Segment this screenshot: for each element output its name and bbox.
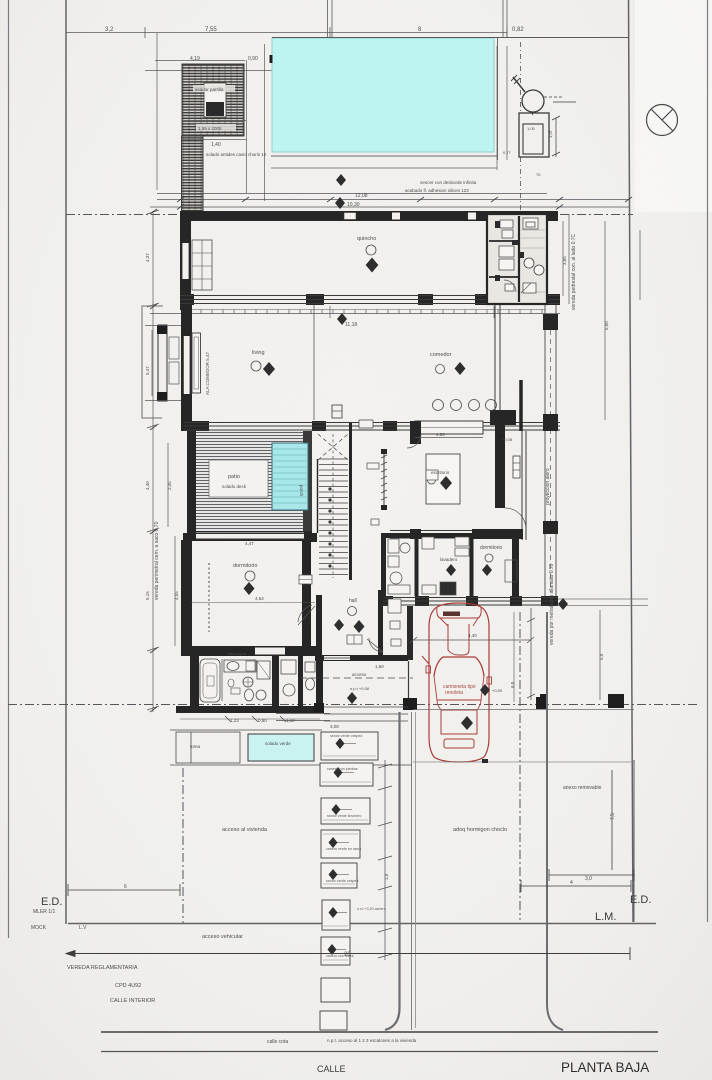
svg-text:E.D.: E.D. <box>41 896 62 908</box>
svg-text:acceso: acceso <box>352 672 367 677</box>
svg-text:+0,05: +0,05 <box>492 688 503 693</box>
svg-text:L.V: L.V <box>79 925 87 931</box>
svg-text:12,08: 12,08 <box>355 193 368 199</box>
svg-text:sector verde limonero: sector verde limonero <box>327 814 362 818</box>
svg-text:proyeccion alero: proyeccion alero <box>545 468 551 505</box>
svg-text:3,0: 3,0 <box>585 876 592 882</box>
svg-text:escritorio: escritorio <box>431 470 450 475</box>
svg-text:CPD 4U92: CPD 4U92 <box>115 983 141 989</box>
svg-text:6: 6 <box>124 884 127 890</box>
svg-text:3,85: 3,85 <box>562 256 567 265</box>
svg-text:canero verde en rama: canero verde en rama <box>326 847 361 851</box>
svg-text:1,07: 1,07 <box>548 129 553 138</box>
svg-text:canero con piedras: canero con piedras <box>327 767 358 771</box>
svg-text:comedor: comedor <box>430 352 452 358</box>
svg-text:anexo removable: anexo removable <box>563 785 602 791</box>
svg-text:toma: toma <box>190 744 201 749</box>
svg-text:75: 75 <box>536 172 541 177</box>
svg-text:CALLE: CALLE <box>317 1064 346 1074</box>
svg-text:n.p.t. acceso al 1 2 3 escalon: n.p.t. acceso al 1 2 3 escalones a la vi… <box>327 1038 417 1043</box>
svg-text:E.D.: E.D. <box>630 894 651 906</box>
svg-text:7,55: 7,55 <box>205 27 217 33</box>
svg-text:5,00: 5,00 <box>604 321 609 330</box>
svg-text:vereda por metral cem allanado: vereda por metral cem allanado 0.70 <box>549 563 555 645</box>
svg-text:ALA COMEDOR 5,47: ALA COMEDOR 5,47 <box>205 351 210 395</box>
svg-text:0,80: 0,80 <box>258 718 267 723</box>
svg-text:1,0: 1,0 <box>384 873 389 880</box>
svg-text:2,45: 2,45 <box>167 481 172 490</box>
svg-text:5,0: 5,0 <box>599 653 604 660</box>
svg-text:bano ppal: bano ppal <box>228 651 246 656</box>
svg-text:living: living <box>252 350 265 356</box>
svg-text:MOCK: MOCK <box>31 925 47 931</box>
svg-text:+0,08: +0,08 <box>502 437 513 442</box>
svg-text:4,60: 4,60 <box>436 432 445 437</box>
svg-text:4,37: 4,37 <box>145 253 150 262</box>
svg-text:0,77: 0,77 <box>503 150 512 155</box>
svg-text:patio: patio <box>228 474 240 480</box>
svg-text:n.v.t +0,20 canero: n.v.t +0,20 canero <box>357 907 386 911</box>
svg-text:lavadero: lavadero <box>440 557 458 562</box>
svg-text:11,18: 11,18 <box>345 322 357 328</box>
svg-text:1,10: 1,10 <box>286 718 295 723</box>
svg-text:3,08: 3,08 <box>330 724 339 729</box>
svg-text:CALLE INTERIOR: CALLE INTERIOR <box>110 998 155 1004</box>
svg-text:1,55 x 2005: 1,55 x 2005 <box>198 126 222 131</box>
svg-text:solado deck: solado deck <box>222 484 247 489</box>
svg-text:L.M.: L.M. <box>595 911 616 923</box>
svg-text:acceso al vivienda: acceso al vivienda <box>222 827 268 833</box>
svg-text:3,2: 3,2 <box>105 27 114 33</box>
svg-text:acceso vehicular: acceso vehicular <box>202 934 243 940</box>
svg-text:10,30: 10,30 <box>347 202 360 208</box>
svg-text:vereda pedrestal con. al lado: vereda pedrestal con. al lado 0.7C <box>571 233 577 310</box>
svg-text:acabado fl. adhesion silices 1: acabado fl. adhesion silices 123 <box>405 188 469 193</box>
svg-text:4,47: 4,47 <box>245 541 254 546</box>
svg-text:1,50: 1,50 <box>375 664 384 669</box>
svg-text:5,15: 5,15 <box>145 591 150 600</box>
svg-text:vereda perimetral cem. a saco: vereda perimetral cem. a saco 0.70 <box>154 521 160 600</box>
svg-text:adoq hormigon choclo: adoq hormigon choclo <box>453 827 507 833</box>
svg-text:4,19: 4,19 <box>190 56 200 62</box>
svg-text:dormitorio: dormitorio <box>480 545 502 551</box>
svg-text:asador parrilla: asador parrilla <box>195 87 224 92</box>
svg-text:MLER 1/1: MLER 1/1 <box>33 909 55 915</box>
svg-text:20: 20 <box>344 952 351 958</box>
svg-text:calle cota: calle cota <box>267 1039 288 1045</box>
svg-text:5,47: 5,47 <box>145 366 150 375</box>
svg-text:quincho: quincho <box>357 236 376 242</box>
svg-text:vencer con desborde infinita: vencer con desborde infinita <box>420 180 477 185</box>
svg-text:0,90: 0,90 <box>248 56 258 62</box>
svg-text:4,40: 4,40 <box>145 481 150 490</box>
svg-text:4,55: 4,55 <box>174 591 179 600</box>
svg-text:0,82: 0,82 <box>512 27 524 33</box>
svg-text:4: 4 <box>570 880 573 886</box>
svg-text:VEREDA REGLAMENTARIA: VEREDA REGLAMENTARIA <box>67 965 138 971</box>
svg-text:solado antides cavio choris 12: solado antides cavio choris 12 <box>206 152 267 157</box>
svg-text:sector verde cesped: sector verde cesped <box>326 879 358 883</box>
svg-text:4,54: 4,54 <box>255 596 264 601</box>
svg-text:sector verde cesped: sector verde cesped <box>330 734 362 738</box>
svg-text:6,0: 6,0 <box>510 681 515 688</box>
svg-text:renoleta: renoleta <box>445 690 463 696</box>
svg-text:solado verde: solado verde <box>265 741 291 746</box>
svg-text:porch: porch <box>299 485 304 497</box>
svg-text:hall: hall <box>349 598 357 604</box>
svg-text:n.p.t +0.08: n.p.t +0.08 <box>350 686 370 691</box>
svg-text:4,40: 4,40 <box>468 633 477 638</box>
svg-text:7,5: 7,5 <box>610 813 616 820</box>
svg-text:PLANTA BAJA: PLANTA BAJA <box>561 1060 649 1075</box>
svg-text:1,23: 1,23 <box>230 718 239 723</box>
svg-text:dormitorio: dormitorio <box>233 563 257 569</box>
svg-text:1,40: 1,40 <box>211 142 221 148</box>
svg-text:1,05: 1,05 <box>527 126 536 131</box>
